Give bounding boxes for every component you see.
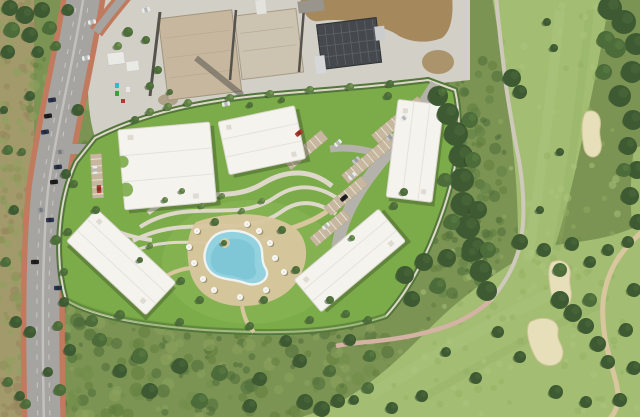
tree-highlight — [597, 338, 604, 345]
vegetation-blob — [304, 350, 311, 357]
tree-highlight — [466, 218, 477, 229]
vegetation-blob — [564, 358, 568, 362]
car-roof — [39, 208, 42, 213]
tree-highlight — [29, 328, 34, 333]
tree-highlight — [77, 106, 82, 111]
tree-highlight — [9, 2, 16, 9]
tree-highlight — [571, 239, 577, 245]
vegetation-blob — [582, 14, 588, 20]
tree-highlight — [321, 403, 328, 410]
vegetation-blob — [539, 263, 546, 270]
vegetation-blob — [165, 341, 178, 354]
vegetation-blob — [336, 334, 341, 339]
vegetation-blob — [614, 210, 621, 217]
vegetation-blob — [557, 185, 564, 192]
tree-highlight — [145, 37, 149, 41]
vegetation-blob — [497, 134, 502, 139]
vegetation-blob — [490, 302, 498, 310]
vegetation-blob — [28, 80, 40, 92]
vegetation-blob — [2, 187, 8, 193]
tree-highlight — [67, 6, 72, 11]
vegetation-blob — [403, 395, 408, 400]
tree-highlight — [543, 245, 549, 251]
vegetation-blob — [437, 401, 444, 408]
vegetation-blob — [528, 288, 533, 293]
vegetation-blob — [482, 359, 487, 364]
vegetation-blob — [381, 346, 394, 359]
vegetation-blob — [86, 329, 94, 337]
tree-highlight — [618, 88, 628, 98]
tree-highlight — [117, 43, 121, 47]
tree-highlight — [469, 114, 476, 121]
tree-highlight — [55, 236, 60, 241]
tree-highlight — [67, 229, 71, 233]
tree-highlight — [423, 255, 431, 263]
sand-bunker — [582, 111, 601, 157]
tree-highlight — [149, 109, 153, 113]
tree-highlight — [134, 117, 138, 121]
vegetation-blob — [30, 73, 37, 80]
vegetation-blob — [520, 64, 525, 69]
tree-highlight — [486, 284, 495, 293]
vegetation-blob — [451, 385, 457, 391]
building-annex — [374, 26, 386, 41]
vegetation-blob — [1, 195, 6, 200]
vegetation-blob — [499, 186, 507, 194]
vegetation-blob — [42, 57, 47, 62]
tree-highlight — [477, 203, 485, 211]
tree-highlight — [629, 189, 637, 197]
car-roof — [58, 150, 62, 155]
truck — [255, 0, 267, 15]
vegetation-blob — [613, 345, 617, 349]
vegetation-blob — [463, 275, 470, 282]
tree-highlight — [589, 258, 594, 263]
vegetation-blob — [476, 142, 483, 149]
vegetation-blob — [502, 150, 507, 155]
container-bin — [121, 99, 125, 103]
tree-highlight — [607, 357, 613, 363]
tree-highlight — [367, 317, 371, 321]
tree-highlight — [487, 244, 494, 251]
vegetation-blob — [620, 371, 624, 375]
vegetation-blob — [73, 317, 86, 330]
car-roof — [50, 98, 54, 103]
vegetation-blob — [486, 314, 491, 319]
tree-highlight — [329, 297, 333, 301]
vegetation-blob — [9, 219, 15, 225]
vegetation-blob — [68, 395, 81, 408]
vegetation-blob — [16, 118, 23, 125]
tree-highlight — [262, 199, 265, 202]
vegetation-blob — [1, 403, 5, 407]
tree-highlight — [472, 154, 479, 161]
vegetation-blob — [500, 254, 504, 258]
vegetation-blob — [459, 87, 469, 97]
vegetation-blob — [548, 189, 554, 195]
dirt-patch — [422, 50, 454, 74]
tree-highlight — [345, 311, 349, 315]
vegetation-blob — [463, 368, 470, 375]
tree-highlight — [63, 269, 67, 273]
tree-highlight — [329, 367, 334, 372]
roof-unit — [421, 189, 427, 195]
tree-highlight — [63, 298, 68, 303]
vegetation-blob — [3, 83, 9, 89]
tree-highlight — [165, 198, 168, 201]
vegetation-blob — [138, 326, 150, 338]
tree-highlight — [461, 195, 472, 206]
vegetation-blob — [274, 385, 283, 394]
vegetation-blob — [304, 380, 310, 386]
vegetation-blob — [420, 289, 426, 295]
vegetation-blob — [571, 163, 577, 169]
vegetation-blob — [577, 61, 584, 68]
tree-highlight — [627, 238, 632, 243]
tree-highlight — [469, 248, 476, 255]
vegetation-blob — [4, 366, 13, 375]
tree-highlight — [15, 318, 20, 323]
aerial-photo — [0, 0, 640, 417]
tree-highlight — [282, 98, 285, 101]
vegetation-blob — [471, 142, 475, 146]
tree-highlight — [179, 319, 183, 323]
tree-highlight — [559, 149, 563, 153]
vegetation-blob — [499, 315, 506, 322]
tree-highlight — [369, 352, 374, 357]
vegetation-blob — [589, 163, 595, 169]
vegetation-blob — [312, 377, 325, 390]
vegetation-blob — [248, 353, 255, 360]
umbrella-pole — [265, 289, 267, 291]
vegetation-blob — [509, 166, 514, 171]
tree-highlight — [349, 84, 353, 88]
tree-highlight — [519, 353, 524, 358]
vegetation-blob — [484, 160, 495, 171]
vegetation-blob — [497, 227, 506, 236]
tree-highlight — [127, 28, 132, 33]
tree-highlight — [349, 336, 354, 341]
tree-highlight — [446, 106, 456, 116]
vegetation-blob — [75, 387, 82, 394]
car-roof — [33, 260, 36, 265]
vegetation-blob — [610, 128, 614, 132]
tree-highlight — [393, 203, 397, 207]
tree-highlight — [337, 396, 343, 402]
tree-highlight — [519, 236, 526, 243]
vegetation-blob — [216, 336, 222, 342]
tree-highlight — [187, 100, 191, 104]
tree-highlight — [139, 350, 146, 357]
vegetation-blob — [111, 338, 122, 349]
tree-highlight — [352, 236, 355, 239]
vegetation-blob — [132, 328, 136, 332]
tree-highlight — [304, 396, 311, 403]
vegetation-blob — [441, 234, 448, 241]
vegetation-blob — [12, 383, 21, 392]
tree-highlight — [605, 33, 613, 41]
vegetation-blob — [243, 366, 250, 373]
vegetation-blob — [205, 355, 209, 359]
tree-highlight — [353, 396, 358, 401]
vegetation-blob — [537, 105, 542, 110]
vegetation-blob — [80, 367, 94, 381]
vegetation-blob — [5, 315, 10, 320]
tree-highlight — [219, 367, 226, 374]
tree-highlight — [519, 87, 525, 93]
vegetation-blob — [13, 68, 22, 77]
tree-highlight — [69, 346, 74, 351]
vegetation-blob — [571, 334, 575, 338]
vegetation-blob — [571, 224, 576, 229]
umbrella-pole — [246, 223, 248, 225]
tree-highlight — [623, 165, 629, 171]
tree-highlight — [546, 19, 550, 23]
vegetation-blob — [79, 343, 83, 347]
tree-highlight — [391, 404, 396, 409]
vegetation-blob — [562, 209, 570, 217]
vegetation-blob — [579, 352, 587, 360]
vegetation-blob — [610, 337, 618, 345]
vegetation-blob — [155, 345, 162, 352]
vegetation-blob — [15, 180, 21, 186]
car-roof — [52, 180, 56, 185]
vegetation-blob — [345, 376, 350, 381]
tree-highlight — [603, 66, 610, 73]
tree-highlight — [24, 8, 32, 16]
vegetation-blob — [580, 31, 588, 39]
vegetation-blob — [7, 329, 13, 335]
vegetation-blob — [435, 264, 442, 271]
vegetation-blob — [23, 68, 28, 73]
vegetation-blob — [575, 274, 581, 280]
tree-highlight — [7, 146, 12, 151]
tree-highlight — [444, 175, 450, 181]
tree-highlight — [150, 244, 153, 247]
vegetation-blob — [462, 399, 469, 406]
tree-highlight — [539, 207, 543, 211]
tree-highlight — [460, 171, 471, 182]
vegetation-blob — [583, 269, 590, 276]
tree-highlight — [167, 104, 171, 108]
tree-highlight — [182, 189, 185, 192]
tree-highlight — [49, 23, 55, 29]
vegetation-blob — [485, 95, 494, 104]
tree-highlight — [99, 335, 105, 341]
vegetation-blob — [599, 396, 605, 402]
vegetation-blob — [519, 271, 527, 279]
tree-highlight — [119, 366, 125, 372]
roof-unit — [403, 108, 409, 114]
vegetation-blob — [520, 42, 527, 49]
vegetation-blob — [108, 383, 113, 388]
vegetation-blob — [109, 390, 121, 402]
vegetation-blob — [29, 112, 38, 121]
tree-highlight — [421, 392, 426, 397]
vegetation-blob — [498, 238, 502, 242]
tree-highlight — [555, 387, 561, 393]
tree-highlight — [511, 71, 519, 79]
car-roof — [56, 165, 60, 170]
roof-unit — [127, 135, 133, 141]
umbrella-pole — [202, 278, 204, 280]
vegetation-blob — [520, 289, 526, 295]
vegetation-blob — [517, 337, 524, 344]
vegetation-blob — [610, 231, 615, 236]
tree-highlight — [222, 194, 225, 197]
tree-highlight — [41, 4, 48, 11]
tree-highlight — [249, 401, 255, 407]
vegetation-blob — [13, 159, 22, 168]
car — [93, 166, 98, 174]
tree-highlight — [585, 398, 590, 403]
car — [31, 260, 39, 265]
car — [97, 185, 102, 193]
vegetation-blob — [2, 115, 8, 121]
car-roof — [93, 168, 98, 171]
tree-highlight — [202, 204, 205, 207]
vegetation-blob — [499, 379, 505, 385]
tree-highlight — [95, 207, 99, 211]
vegetation-blob — [564, 194, 572, 202]
vegetation-blob — [474, 386, 482, 394]
vegetation-blob — [164, 331, 175, 342]
vegetation-blob — [555, 195, 559, 199]
tree-highlight — [157, 67, 161, 71]
vegetation-blob — [489, 191, 501, 203]
umbrella-pole — [239, 296, 241, 298]
vegetation-blob — [20, 168, 27, 175]
container-bin — [115, 83, 119, 88]
vegetation-blob — [434, 378, 439, 383]
tree-highlight — [7, 47, 13, 53]
vegetation-blob — [4, 357, 8, 361]
vegetation-blob — [2, 168, 6, 172]
tree-highlight — [585, 320, 592, 327]
vegetation-blob — [600, 402, 607, 409]
vegetation-blob — [238, 363, 243, 368]
vegetation-blob — [5, 405, 11, 411]
vegetation-blob — [271, 358, 279, 366]
tree-highlight — [73, 181, 77, 185]
vegetation-blob — [284, 373, 294, 383]
tree-highlight — [475, 374, 480, 379]
tree-highlight — [57, 322, 62, 327]
tree-highlight — [59, 386, 64, 391]
vegetation-blob — [561, 362, 568, 369]
vegetation-blob — [507, 400, 512, 405]
vegetation-blob — [162, 409, 169, 416]
tree-highlight — [179, 360, 186, 367]
tree-highlight — [299, 356, 305, 362]
tree-highlight — [65, 170, 70, 175]
tree-highlight — [285, 337, 290, 342]
tree-highlight — [19, 392, 24, 397]
tree-highlight — [29, 29, 36, 36]
vegetation-blob — [489, 229, 497, 237]
car — [54, 286, 62, 291]
vegetation-blob — [298, 338, 304, 344]
tree-highlight — [263, 297, 267, 301]
vegetation-blob — [558, 3, 565, 10]
vegetation-blob — [502, 214, 506, 218]
tree-highlight — [119, 311, 124, 316]
vegetation-blob — [33, 62, 39, 68]
vegetation-blob — [525, 201, 532, 208]
vegetation-blob — [24, 88, 28, 92]
tree-highlight — [454, 125, 465, 136]
tree-highlight — [553, 45, 557, 49]
vegetation-blob — [581, 408, 586, 413]
vegetation-blob — [352, 372, 365, 385]
vegetation-blob — [9, 106, 13, 110]
vegetation-blob — [108, 405, 117, 414]
vegetation-blob — [518, 296, 522, 300]
vegetation-blob — [228, 395, 233, 400]
vegetation-blob — [391, 383, 396, 388]
tree-highlight — [249, 323, 253, 327]
vegetation-blob — [465, 269, 469, 273]
vegetation-blob — [446, 287, 457, 298]
vegetation-blob — [574, 267, 578, 271]
tree-highlight — [281, 227, 285, 231]
umbrella-pole — [193, 262, 195, 264]
tree-highlight — [242, 209, 245, 212]
vegetation-blob — [233, 362, 238, 367]
vegetation-blob — [184, 332, 191, 339]
vegetation-blob — [486, 85, 495, 94]
vegetation-blob — [156, 407, 161, 412]
vegetation-blob — [7, 164, 15, 172]
tree-highlight — [622, 13, 633, 24]
tree-highlight — [55, 42, 60, 47]
vegetation-blob — [254, 385, 268, 399]
umbrella-pole — [283, 271, 285, 273]
tree-highlight — [21, 149, 25, 153]
vegetation-blob — [544, 152, 551, 159]
vegetation-blob — [455, 82, 460, 87]
vegetation-blob — [479, 411, 484, 416]
vegetation-blob — [531, 283, 537, 289]
vegetation-blob — [442, 304, 447, 309]
vegetation-blob — [3, 312, 8, 317]
tree-highlight — [437, 280, 444, 287]
vegetation-blob — [431, 303, 436, 308]
vegetation-blob — [131, 366, 145, 380]
vegetation-blob — [496, 217, 503, 224]
vegetation-blob — [495, 259, 500, 264]
vegetation-blob — [590, 371, 597, 378]
vegetation-blob — [508, 364, 514, 370]
vegetation-blob — [24, 57, 30, 63]
vegetation-blob — [570, 341, 577, 348]
vegetation-blob — [531, 258, 536, 263]
tree-highlight — [589, 295, 595, 301]
vegetation-blob — [484, 367, 491, 374]
vegetation-blob — [366, 324, 375, 333]
vegetation-blob — [397, 349, 402, 354]
roof-unit — [193, 193, 199, 199]
car — [54, 164, 62, 169]
vegetation-blob — [19, 101, 23, 105]
tree-highlight — [445, 348, 450, 353]
vegetation-blob — [432, 341, 437, 346]
vegetation-blob — [203, 339, 215, 351]
vegetation-blob — [482, 119, 490, 127]
vegetation-blob — [11, 272, 20, 281]
vegetation-blob — [151, 368, 161, 378]
tree-highlight — [627, 139, 635, 147]
